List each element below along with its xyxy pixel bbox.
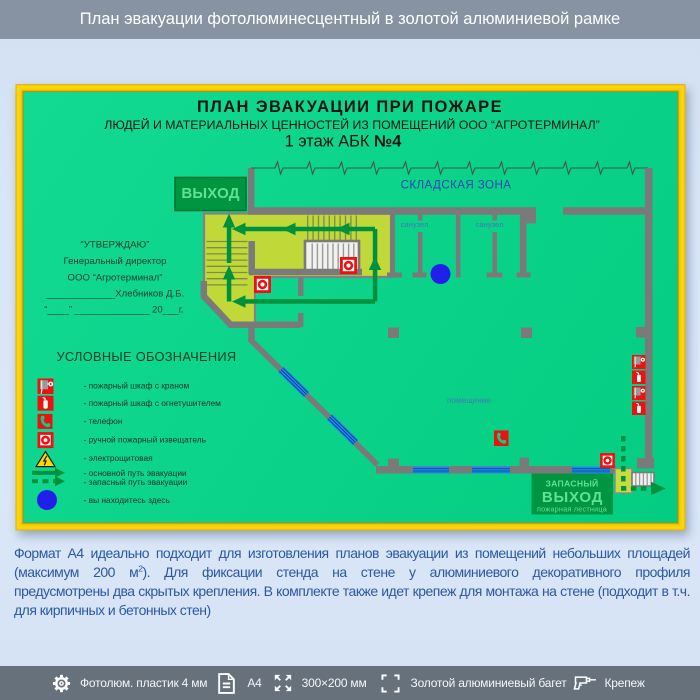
svg-text:пожарная лестница: пожарная лестница (537, 505, 608, 514)
svg-text:ВЫХОД: ВЫХОД (542, 489, 603, 506)
svg-text:санузел: санузел (476, 220, 504, 229)
svg-text:- пожарный шкаф с огнетушителе: - пожарный шкаф с огнетушителем (84, 398, 222, 408)
svg-text:помещение: помещение (447, 396, 491, 405)
svg-text:ЛЮДЕЙ И МАТЕРИАЛЬНЫХ ЦЕННОСТЕЙ: ЛЮДЕЙ И МАТЕРИАЛЬНЫХ ЦЕННОСТЕЙ ИЗ ПОМЕЩЕ… (104, 117, 599, 132)
svg-text:Генеральный директор: Генеральный директор (64, 256, 167, 267)
svg-text:- телефон: - телефон (84, 416, 123, 426)
svg-text:- пожарный шкаф с краном: - пожарный шкаф с краном (84, 381, 190, 391)
svg-text:санузел: санузел (401, 220, 429, 229)
svg-text:ВЫХОД: ВЫХОД (181, 185, 239, 202)
svg-text:“УТВЕРЖДАЮ”: “УТВЕРЖДАЮ” (81, 240, 150, 251)
svg-text:- вы находитесь здесь: - вы находитесь здесь (84, 495, 171, 505)
svg-text:_____________Хлебников Д.Б.: _____________Хлебников Д.Б. (45, 289, 184, 300)
svg-text:СКЛАДСКАЯ ЗОНА: СКЛАДСКАЯ ЗОНА (401, 179, 512, 192)
svg-text:УСЛОВНЫЕ ОБОЗНАЧЕНИЯ: УСЛОВНЫЕ ОБОЗНАЧЕНИЯ (57, 349, 237, 364)
svg-text:ООО “Агротерминал”: ООО “Агротерминал” (68, 273, 163, 284)
svg-text:“____” ______________ 20___г.: “____” ______________ 20___г. (44, 305, 183, 316)
svg-text:ЗАПАСНЫЙ: ЗАПАСНЫЙ (545, 478, 598, 489)
svg-text:- электрощитовая: - электрощитовая (84, 453, 153, 463)
svg-text:- ручной пожарный извещатель: - ручной пожарный извещатель (84, 435, 207, 445)
svg-text:1 этаж АБК №4: 1 этаж АБК №4 (285, 133, 403, 151)
svg-text:- запасный путь эвакуации: - запасный путь эвакуации (84, 477, 188, 487)
svg-text:ПЛАН ЭВАКУАЦИИ ПРИ ПОЖАРЕ: ПЛАН ЭВАКУАЦИИ ПРИ ПОЖАРЕ (197, 98, 503, 116)
